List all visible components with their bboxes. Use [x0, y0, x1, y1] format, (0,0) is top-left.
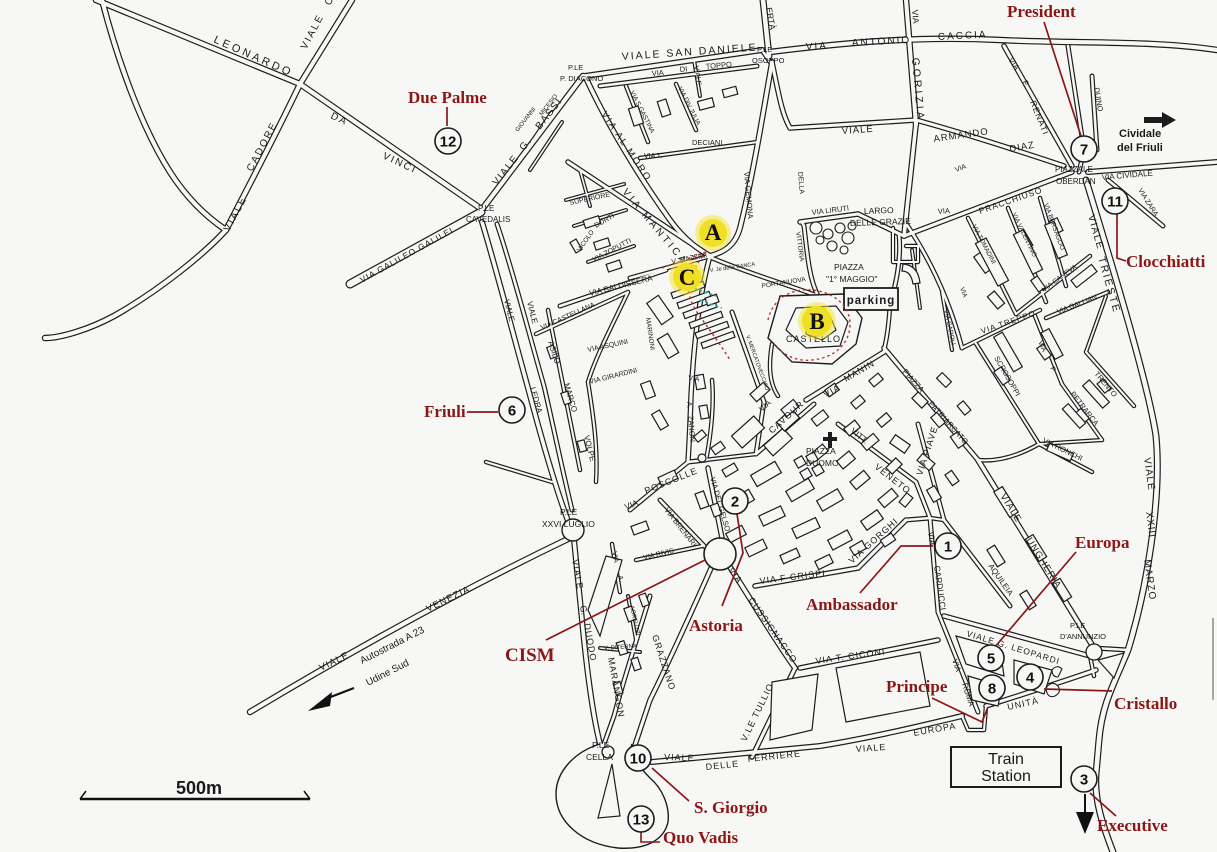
svg-text:Cristallo: Cristallo [1114, 694, 1177, 713]
svg-text:VIA: VIA [651, 68, 664, 78]
svg-text:Executive: Executive [1097, 816, 1168, 835]
svg-text:CISM: CISM [505, 645, 555, 666]
svg-text:del Friuli: del Friuli [1117, 142, 1163, 154]
svg-text:VIA T.: VIA T. [644, 153, 662, 160]
svg-text:13: 13 [633, 812, 650, 829]
svg-text:Train: Train [988, 751, 1024, 768]
svg-text:S. Giorgio: S. Giorgio [694, 798, 768, 817]
svg-text:DUOMO: DUOMO [806, 458, 839, 468]
svg-text:Due Palme: Due Palme [408, 88, 487, 107]
svg-text:DELLE GRAZIE: DELLE GRAZIE [850, 216, 912, 228]
svg-text:"1° MAGGIO": "1° MAGGIO" [826, 274, 877, 284]
svg-text:Clocchiatti: Clocchiatti [1126, 252, 1206, 271]
svg-text:P.LE: P.LE [560, 507, 578, 517]
svg-text:President: President [1007, 2, 1076, 21]
svg-text:PIAZZALE: PIAZZALE [1055, 165, 1093, 174]
svg-text:A.: A. [685, 402, 693, 409]
svg-text:7: 7 [1080, 142, 1088, 159]
svg-text:2: 2 [731, 494, 739, 511]
svg-text:Friuli: Friuli [424, 402, 466, 421]
svg-text:11: 11 [1107, 194, 1123, 211]
svg-text:P.LE: P.LE [592, 740, 610, 750]
svg-text:P.LE: P.LE [1070, 621, 1085, 630]
svg-text:CELLA: CELLA [586, 752, 613, 762]
svg-text:5: 5 [987, 651, 995, 668]
svg-text:A: A [705, 220, 722, 245]
svg-text:P.LE: P.LE [757, 45, 772, 54]
svg-text:Station: Station [981, 768, 1031, 785]
svg-text:PIAZZA: PIAZZA [834, 262, 864, 272]
svg-text:VIALE: VIALE [841, 124, 874, 137]
svg-text:LARGO: LARGO [864, 205, 894, 216]
svg-text:Europa: Europa [1075, 533, 1130, 552]
svg-text:VIA: VIA [910, 9, 921, 24]
svg-text:VIALE: VIALE [855, 742, 886, 754]
svg-text:Ambassador: Ambassador [806, 595, 898, 614]
svg-text:6: 6 [508, 403, 516, 420]
svg-text:3: 3 [1080, 772, 1088, 789]
svg-text:4: 4 [1026, 670, 1035, 687]
svg-text:Cividale: Cividale [1119, 128, 1161, 140]
svg-text:XXVI LUGLIO: XXVI LUGLIO [542, 519, 595, 529]
svg-text:G.: G. [578, 605, 590, 616]
svg-text:8: 8 [988, 681, 996, 698]
svg-text:12: 12 [440, 134, 457, 151]
svg-text:D'ANNUNZIO: D'ANNUNZIO [1060, 632, 1106, 641]
svg-text:P.LE: P.LE [478, 204, 494, 213]
svg-text:VIA: VIA [938, 206, 951, 216]
svg-text:Quo Vadis: Quo Vadis [663, 828, 739, 847]
svg-text:OSOPPO: OSOPPO [752, 56, 785, 65]
svg-text:VIA: VIA [806, 41, 829, 53]
svg-text:10: 10 [630, 751, 647, 768]
svg-text:P. DIACONO: P. DIACONO [560, 74, 603, 83]
svg-text:P.LE: P.LE [568, 63, 583, 72]
svg-text:DECIANI: DECIANI [692, 138, 722, 147]
svg-text:OBERDAN: OBERDAN [1056, 177, 1096, 186]
svg-text:Principe: Principe [886, 677, 948, 696]
svg-text:parking: parking [847, 295, 896, 307]
svg-text:Astoria: Astoria [689, 616, 743, 635]
svg-text:C: C [679, 265, 696, 290]
svg-text:1: 1 [944, 539, 952, 556]
svg-text:CAVEDALIS: CAVEDALIS [466, 215, 510, 224]
svg-text:500m: 500m [176, 778, 222, 798]
svg-text:DI: DI [679, 64, 687, 74]
svg-text:VIALE: VIALE [664, 752, 695, 763]
svg-text:B: B [809, 309, 824, 334]
